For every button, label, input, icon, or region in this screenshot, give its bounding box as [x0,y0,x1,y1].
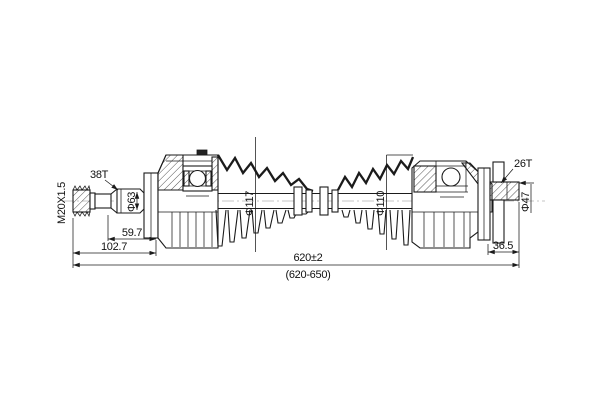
bearing-ball [190,171,206,187]
left-bearing [183,166,212,196]
dim-102-7: 102.7 [101,241,127,253]
boot-clamp [306,190,312,212]
dim-36-5: 36.5 [493,240,513,252]
dim-overall: 620±2 [293,252,322,264]
boot-clamp [294,187,302,215]
right-boot-dia-label: Φ110 [375,191,387,216]
left-spline-leader [105,180,118,190]
bearing-ball [442,168,460,186]
left-cv-joint-housing [158,150,218,248]
technical-drawing-canvas: M20X1.5 38T Φ63 Φ117 Φ110 26T Φ47 59.7 1… [0,0,600,400]
right-output-stub [478,162,519,243]
drive-shaft-drawing: M20X1.5 38T Φ63 Φ117 Φ110 26T Φ47 59.7 1… [0,0,600,400]
left-joint-dia-label: Φ117 [244,191,256,216]
boot-clamp [320,187,328,215]
right-stub-dia-label: Φ47 [520,192,532,212]
dim-59-7: 59.7 [122,227,142,239]
left-boot-cap [144,173,158,238]
boot-clamp [332,190,338,212]
left-spline-teeth-label: 38T [90,169,109,181]
abs-ring-tab [197,150,207,155]
left-shaft-dia-label: Φ63 [126,192,138,212]
left-threaded-stub [73,186,117,216]
right-spline-teeth-label: 26T [514,158,533,170]
dim-overall-range: (620-650) [286,269,331,281]
thread-spec-label: M20X1.5 [56,182,68,224]
